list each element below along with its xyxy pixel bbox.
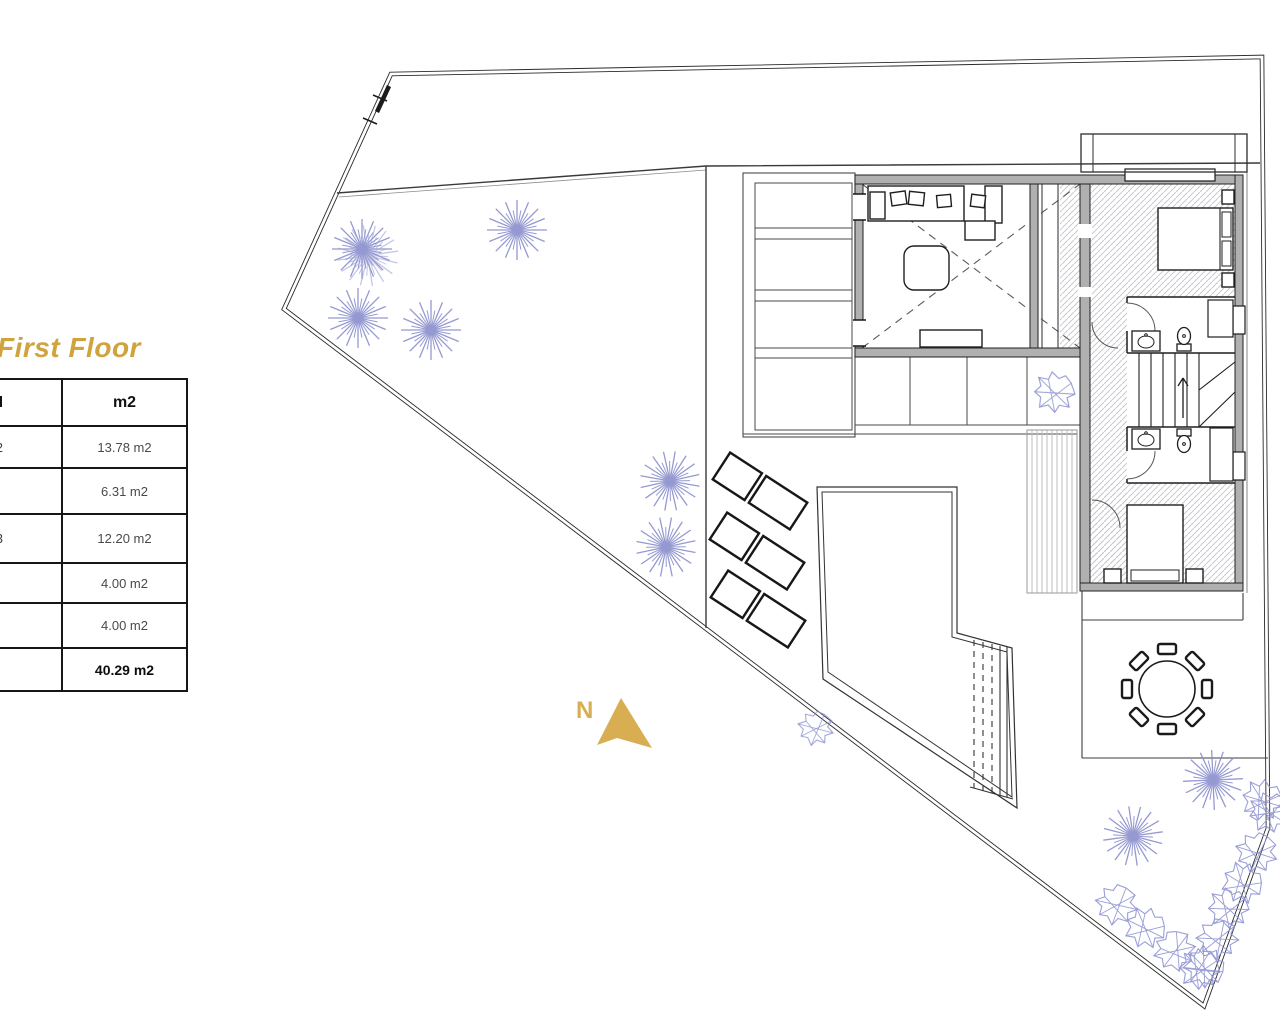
table-header-row: e útil m2 [0, 380, 186, 427]
pool-steps [970, 640, 1013, 799]
dining-table [1139, 661, 1195, 717]
coffee-table [904, 246, 949, 290]
sink-2 [1132, 429, 1160, 449]
site-plan-drawing: N [0, 0, 1280, 1024]
table-row: 4.00 m2 [0, 604, 186, 649]
outdoor-dining-set [1122, 644, 1212, 734]
swimming-pool [817, 487, 1017, 808]
pergola-roof [743, 173, 855, 437]
staircase [1139, 353, 1235, 427]
sofa [868, 186, 1002, 240]
living-room-furniture [868, 186, 1002, 347]
living-step [920, 330, 982, 347]
table-row: o 3 12.20 m2 [0, 515, 186, 564]
area-table: e útil m2 o 2 13.78 m2 6.31 m2 o 3 12.20… [0, 378, 188, 692]
table-total-row: 40.29 m2 [0, 649, 186, 690]
north-arrow: N [576, 697, 652, 748]
wood-deck [1027, 430, 1077, 593]
shower-2 [1210, 428, 1233, 481]
toilet-2 [1177, 429, 1191, 453]
shower-1 [1208, 300, 1233, 337]
north-label: N [576, 697, 593, 724]
floor-plan-page: N First Floor e útil m2 o 2 13.78 m2 6.3… [0, 0, 1280, 1024]
toilet-1 [1177, 328, 1191, 352]
sink-1 [1132, 331, 1160, 351]
window-right-1 [1233, 306, 1245, 334]
page-title: First Floor [0, 332, 141, 364]
header-name: e útil [0, 380, 63, 425]
table-row: 6.31 m2 [0, 469, 186, 515]
terrace-lines [743, 357, 1080, 434]
upper-terrace [1081, 134, 1247, 172]
window-top [1125, 169, 1215, 181]
total-area: 40.29 m2 [63, 649, 186, 690]
header-m2: m2 [63, 380, 186, 425]
bushes [1092, 774, 1280, 995]
sun-loungers [710, 453, 808, 648]
window-right-2 [1233, 452, 1245, 480]
gallery-bridge [1042, 184, 1058, 348]
table-row: o 2 13.78 m2 [0, 427, 186, 469]
table-row: 4.00 m2 [0, 564, 186, 604]
